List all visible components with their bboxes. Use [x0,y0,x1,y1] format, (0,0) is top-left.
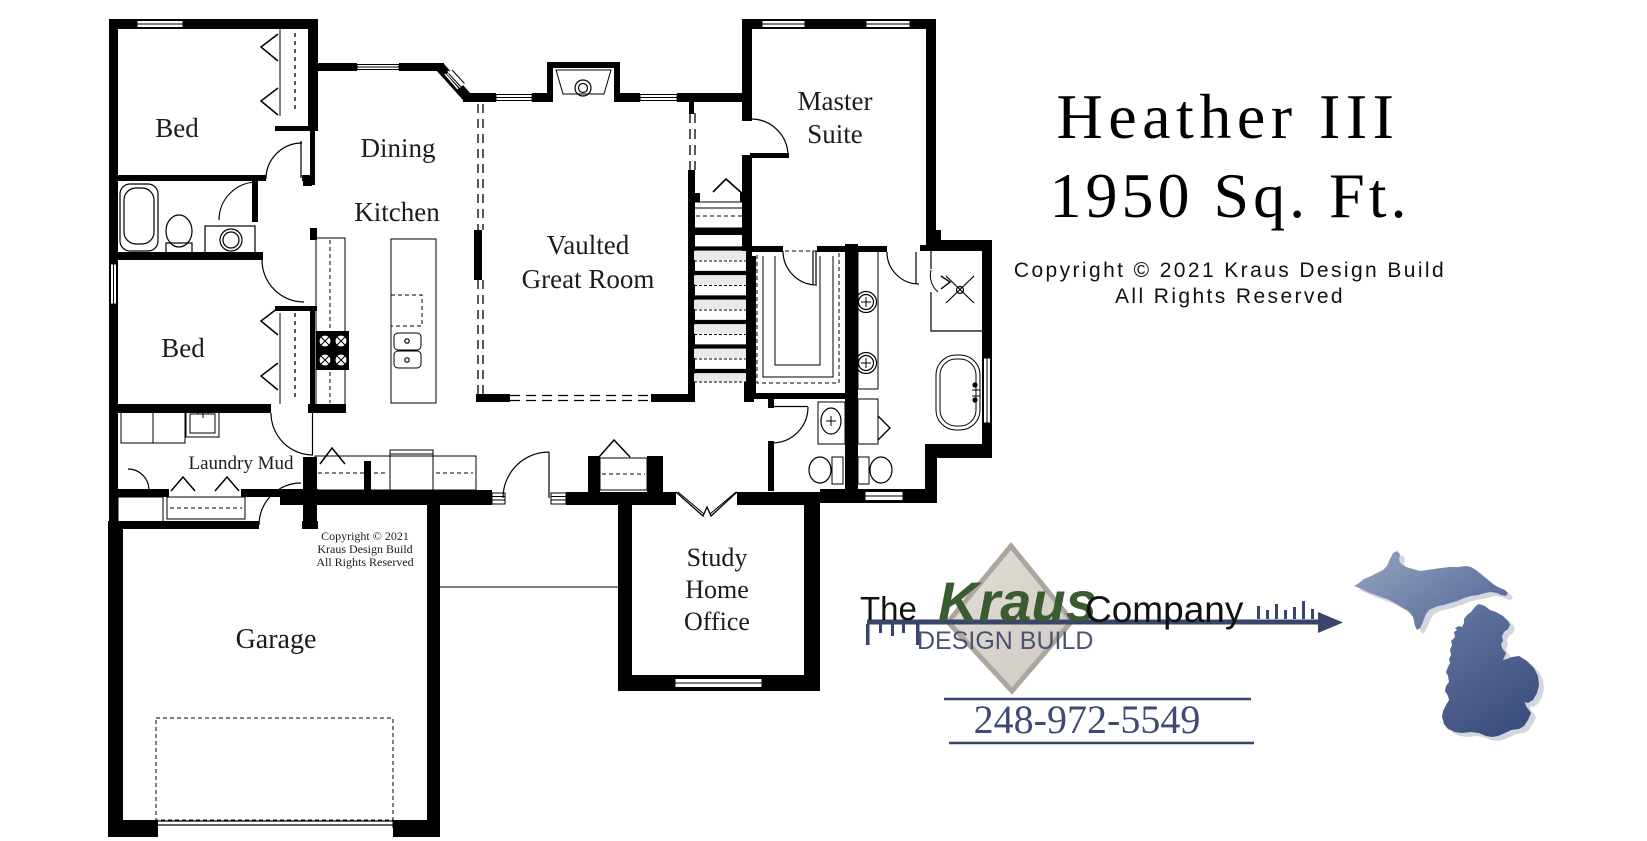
svg-text:All Rights Reserved: All Rights Reserved [1115,285,1345,308]
svg-text:Office: Office [684,607,750,636]
svg-text:The: The [860,590,917,627]
svg-text:Kitchen: Kitchen [354,197,440,227]
svg-text:1950 Sq. Ft.: 1950 Sq. Ft. [1050,160,1411,231]
svg-text:DESIGN BUILD: DESIGN BUILD [917,627,1093,655]
svg-text:Great Room: Great Room [522,264,655,294]
svg-text:Garage: Garage [236,624,317,655]
svg-text:Company: Company [1085,589,1244,630]
svg-text:Heather III: Heather III [1057,81,1400,152]
svg-text:Dining: Dining [360,133,435,163]
svg-text:Kraus Design Build: Kraus Design Build [317,542,412,556]
svg-text:Copyright © 2021: Copyright © 2021 [321,529,409,543]
svg-text:Suite: Suite [807,119,863,149]
svg-text:Bed: Bed [155,113,199,143]
svg-text:Laundry Mud: Laundry Mud [188,453,294,474]
svg-text:All Rights Reserved: All Rights Reserved [316,555,413,569]
svg-text:Study: Study [687,543,748,572]
svg-text:Kraus: Kraus [938,570,1097,633]
svg-text:248-972-5549: 248-972-5549 [974,697,1201,742]
svg-text:Home: Home [685,575,749,604]
svg-text:Vaulted: Vaulted [547,230,630,260]
svg-text:Master: Master [798,86,873,116]
svg-text:Bed: Bed [161,333,205,363]
svg-text:Copyright © 2021 Kraus Design: Copyright © 2021 Kraus Design Build [1014,259,1446,282]
